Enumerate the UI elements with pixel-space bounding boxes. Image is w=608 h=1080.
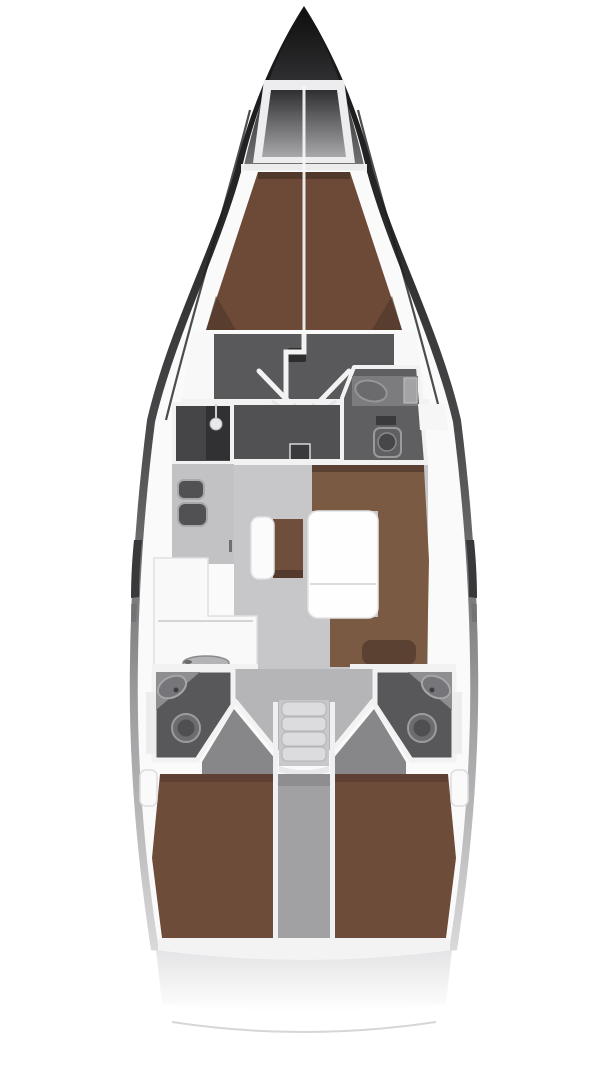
galley-sink-large <box>178 503 207 526</box>
galley-stove-knob <box>184 660 192 664</box>
port-aft-head-drain <box>174 688 179 693</box>
step-4 <box>282 747 326 761</box>
step-3 <box>282 732 326 746</box>
shower-head <box>210 418 222 430</box>
port-hull-window-small <box>131 603 137 622</box>
corridor-floor <box>232 405 342 461</box>
engine-compartment <box>278 774 330 938</box>
starboard-aft-berth <box>335 774 456 938</box>
galley-sink-small <box>178 480 204 499</box>
sofa-backrest-top <box>312 465 424 472</box>
salon-bench <box>273 519 303 577</box>
sofa-corner-cushion <box>362 640 416 665</box>
starboard-aft-head-drain <box>430 688 435 693</box>
shower-inner-panel <box>206 406 230 460</box>
step-rail-starboard <box>330 702 335 942</box>
boat-floorplan-canvas <box>0 0 608 1080</box>
forward-head-toilet-bowl <box>378 433 396 451</box>
step-rail-port <box>273 702 278 942</box>
step-2 <box>282 717 326 731</box>
starboard-hull-window-small <box>471 603 477 622</box>
galley-handle <box>229 540 232 552</box>
salon <box>234 465 429 669</box>
port-side-locker <box>140 770 157 806</box>
transom-curve <box>172 1022 436 1032</box>
salon-bench-shadow <box>273 570 303 578</box>
salon-table <box>308 511 378 618</box>
starboard-head-side-pocket <box>452 692 462 754</box>
port-aft-berth <box>152 774 273 938</box>
forward-head-cistern <box>376 416 396 425</box>
wardrobe-shower <box>174 404 232 463</box>
starboard-side-locker <box>451 770 468 806</box>
port-aft-berth-head-shadow <box>160 774 273 782</box>
companionway <box>273 700 335 942</box>
salon-stool <box>251 517 274 579</box>
starboard-aft-head-toilet-bowl <box>414 720 431 737</box>
starboard-aft-cabin <box>335 770 468 938</box>
forward-head-shelf <box>404 378 417 403</box>
corridor-floor-hatch <box>290 444 310 460</box>
step-1 <box>282 702 326 716</box>
boat-floorplan <box>0 0 608 1080</box>
starboard-deck-block <box>418 404 448 430</box>
port-aft-cabin <box>140 770 273 938</box>
port-head-side-pocket <box>146 692 156 754</box>
engine-compartment-shadow <box>278 774 330 786</box>
centerline <box>303 86 306 352</box>
starboard-aft-berth-head-shadow <box>335 774 448 782</box>
port-aft-head-toilet-bowl <box>178 720 195 737</box>
stern <box>156 938 452 1032</box>
